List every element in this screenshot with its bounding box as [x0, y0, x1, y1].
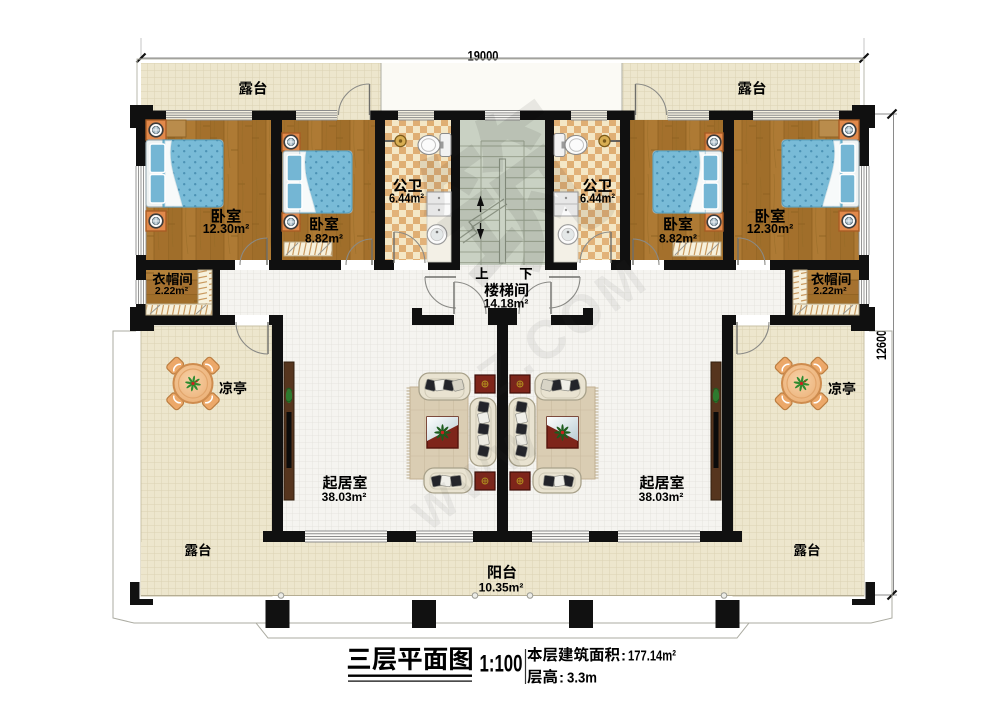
svg-text:6.44m²: 6.44m² [389, 192, 424, 206]
svg-text:12600: 12600 [873, 330, 889, 360]
svg-text:3.3m: 3.3m [567, 670, 597, 687]
svg-text:1:100: 1:100 [480, 651, 523, 678]
svg-text:19000: 19000 [468, 48, 499, 64]
svg-text:177.14m²: 177.14m² [628, 648, 676, 665]
svg-text::: : [559, 670, 564, 687]
svg-text:10.35m²: 10.35m² [479, 581, 524, 595]
svg-text:38.03m²: 38.03m² [322, 490, 367, 504]
svg-text:38.03m²: 38.03m² [639, 490, 684, 504]
svg-text:8.82m²: 8.82m² [305, 232, 343, 246]
svg-text:2.22m²: 2.22m² [155, 285, 189, 297]
svg-text::: : [621, 648, 626, 665]
svg-text:14.18m²: 14.18m² [484, 297, 529, 311]
svg-text:12.30m²: 12.30m² [747, 222, 794, 236]
svg-text:2.22m²: 2.22m² [813, 285, 847, 297]
svg-text:12.30m²: 12.30m² [203, 222, 250, 236]
svg-text:8.82m²: 8.82m² [659, 232, 697, 246]
